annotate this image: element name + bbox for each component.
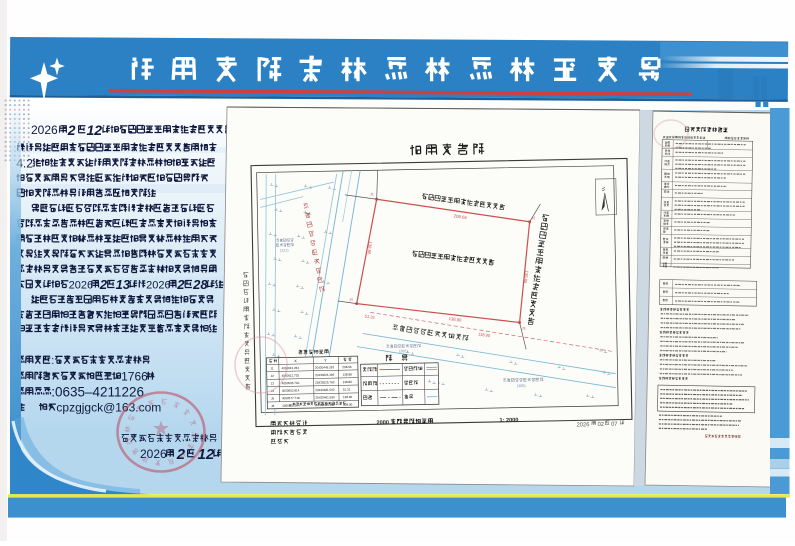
svg-text:20430461.590: 20430461.590 (315, 395, 335, 399)
svg-text::0635–4211226: :0635–4211226 (51, 385, 144, 400)
svg-text:4050652.814: 4050652.814 (282, 388, 300, 392)
svg-text:4050643.264: 4050643.264 (281, 366, 299, 370)
svg-text:20430481.592: 20430481.592 (315, 388, 335, 392)
svg-text:138.86: 138.86 (343, 380, 353, 384)
svg-text:2026: 2026 (31, 123, 58, 137)
svg-text:J3: J3 (522, 326, 526, 330)
svg-text:02: 02 (598, 422, 605, 428)
svg-text:3: 3 (289, 403, 291, 407)
svg-text:2: 2 (176, 277, 185, 292)
svg-text:J4: J4 (349, 298, 353, 302)
svg-text:4050595.740: 4050595.740 (282, 381, 300, 385)
svg-text:(202): (202) (399, 349, 407, 353)
svg-text:208.66: 208.66 (342, 365, 352, 369)
svg-text:12: 12 (87, 122, 103, 138)
svg-text:138.90: 138.90 (343, 395, 353, 399)
svg-text:(105): (105) (517, 384, 527, 388)
svg-text:13: 13 (116, 277, 131, 292)
svg-text:2: 2 (99, 277, 108, 292)
svg-text:20430525.760: 20430525.760 (315, 380, 335, 384)
svg-text:J3: J3 (271, 381, 275, 385)
svg-text:2026: 2026 (146, 280, 170, 292)
svg-text:2: 2 (67, 122, 76, 138)
svg-text:(121): (121) (280, 248, 288, 252)
svg-text:2000: 2000 (376, 420, 389, 426)
svg-text:2026: 2026 (577, 422, 590, 428)
svg-text:28: 28 (192, 277, 208, 292)
svg-text:J1: J1 (270, 366, 274, 370)
svg-text:20430624.496: 20430624.496 (315, 373, 335, 377)
svg-text:4050660.264: 4050660.264 (282, 403, 300, 407)
svg-text:J2: J2 (532, 216, 536, 220)
svg-text:J2: J2 (271, 374, 275, 378)
svg-text:07: 07 (611, 422, 618, 428)
svg-text:1: 2000: 1: 2000 (499, 418, 518, 424)
svg-text:2026: 2026 (69, 280, 93, 292)
svg-text::: : (51, 355, 54, 367)
svg-text:20430449.263: 20430449.263 (315, 365, 335, 369)
svg-text:cpzgjgck@163.com: cpzgjgck@163.com (56, 401, 161, 415)
svg-text:J6: J6 (271, 404, 275, 408)
svg-text:J1: J1 (370, 192, 374, 196)
svg-text:1766: 1766 (121, 370, 148, 384)
svg-text:138.88: 138.88 (343, 372, 353, 376)
svg-text:J5: J5 (271, 396, 275, 400)
svg-text:51.31: 51.31 (343, 387, 351, 391)
svg-text:4050577.718: 4050577.718 (282, 396, 300, 400)
